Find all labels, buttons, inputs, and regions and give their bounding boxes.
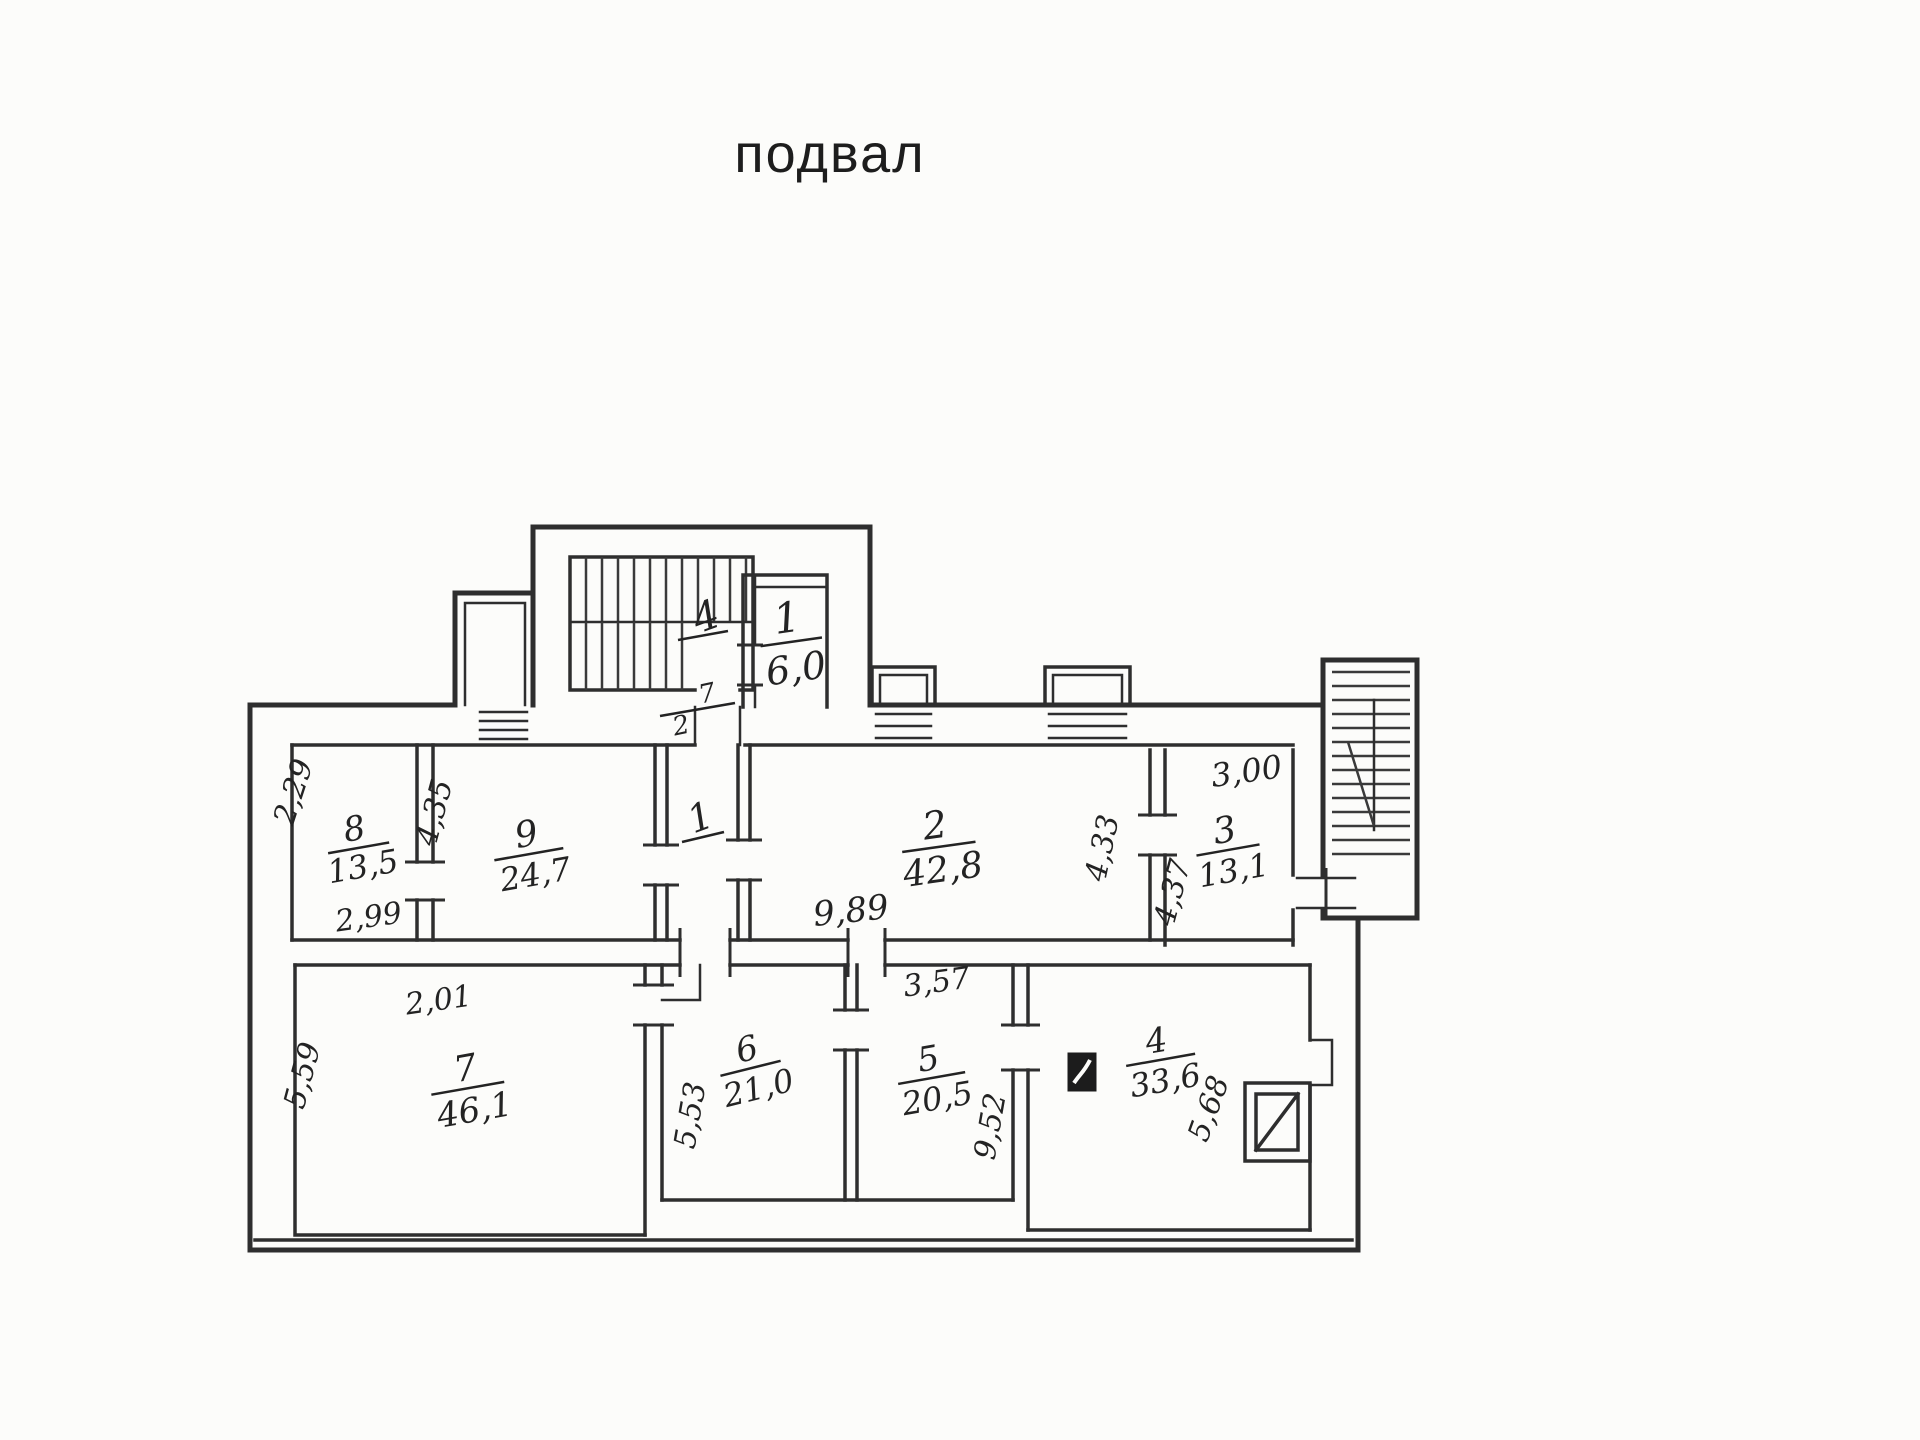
room-9-number: 9 (512, 813, 542, 857)
room-5-label: 5 20,5 (891, 1033, 976, 1123)
dim-room7-left: 5,59 (277, 1039, 328, 1113)
room-2-area: 42,8 (900, 844, 986, 896)
shaft-symbol (1245, 1083, 1310, 1161)
room-tambour-number: 1 (770, 592, 803, 644)
room-8-area: 13,5 (325, 841, 402, 891)
dim-room8-left: 2,29 (267, 755, 321, 830)
room-8-number: 8 (340, 808, 368, 851)
dim-room2-right: 4,33 (1078, 812, 1126, 886)
room-tambour-label: 1 6,0 (754, 589, 829, 695)
room-5-number: 5 (914, 1038, 942, 1081)
room-6-area: 21,0 (718, 1061, 797, 1115)
mid-wall-band (292, 928, 1310, 977)
partition-walls (405, 707, 1177, 1235)
scanned-floor-plan-page: подвал (0, 0, 1920, 1440)
room-2-label: 2 42,8 (893, 798, 986, 896)
room-6-number: 6 (732, 1028, 763, 1072)
room-3-label: 3 13,1 (1188, 804, 1272, 895)
room-7-number: 7 (451, 1047, 481, 1091)
window-bump-2 (1045, 667, 1130, 705)
window-bump-1 (872, 667, 935, 705)
external-staircase (1332, 672, 1410, 854)
room-3-number: 3 (1210, 809, 1240, 853)
room-4-number: 4 (1141, 1020, 1170, 1063)
dim-room3-left: 4,37 (1147, 855, 1199, 930)
stair-mark-line (660, 703, 735, 716)
stair-treads-lower (586, 622, 682, 690)
basement-floor-plan: подвал (0, 0, 1920, 1440)
dim-room7-top: 2,01 (402, 979, 474, 1023)
dim-room3-top: 3,00 (1209, 747, 1285, 795)
stair-treads-upper (586, 557, 746, 622)
room-2-number: 2 (919, 802, 950, 849)
window-hatch-left (480, 712, 527, 739)
room-7-label: 7 46,1 (424, 1042, 515, 1137)
room-4-label: 4 33,6 (1119, 1015, 1203, 1105)
room-6-label: 6 21,0 (708, 1021, 797, 1115)
dim-room5-top: 3,57 (901, 960, 973, 1004)
building-outline (250, 527, 1417, 1250)
flue-symbol (1068, 1053, 1096, 1091)
dim-room2-bottom: 9,89 (811, 887, 890, 935)
left-bay (455, 593, 533, 705)
floor-title: подвал (734, 124, 925, 184)
dim-room6-left: 5,53 (668, 1079, 714, 1151)
dim-room5-right: 9,52 (968, 1090, 1014, 1162)
external-stair-outline (1323, 660, 1417, 918)
room-9-label: 9 24,7 (487, 808, 574, 900)
room-8-label: 8 13,5 (318, 803, 402, 891)
room-tambour-area: 6,0 (763, 642, 829, 694)
dim-room8-bottom: 2,99 (332, 896, 404, 940)
